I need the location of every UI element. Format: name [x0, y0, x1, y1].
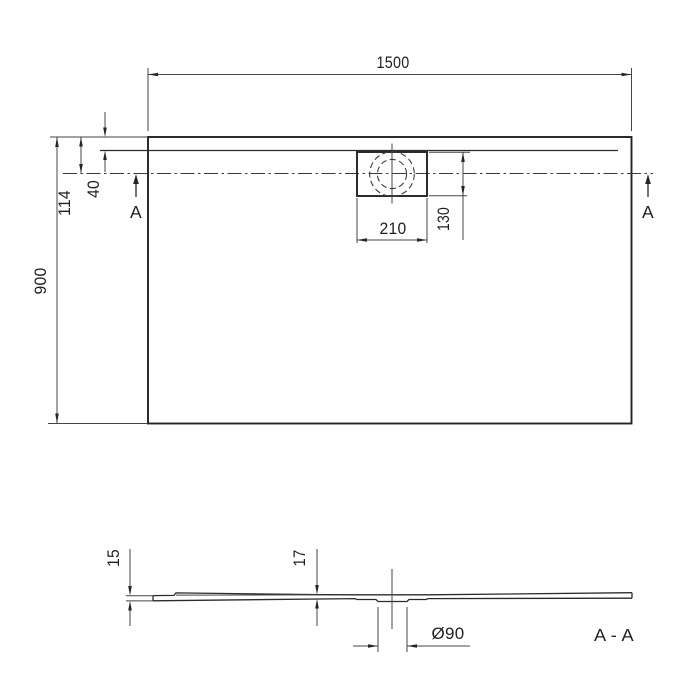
dim-17-label: 17 — [291, 550, 309, 567]
drawing-canvas: 1500 900 114 40 — [0, 0, 700, 700]
dim-17: 17 — [291, 549, 319, 626]
dim-130-label: 130 — [435, 207, 453, 231]
section-cut-arrow-left: A — [130, 174, 142, 222]
dim-900-label: 900 — [32, 268, 50, 295]
dim-114: 114 — [56, 137, 83, 216]
dim-900: 900 — [32, 137, 148, 424]
dim-15: 15 — [105, 549, 153, 626]
dim-1500-label: 1500 — [377, 54, 410, 72]
dim-15-label: 15 — [105, 549, 123, 567]
dim-1500: 1500 — [148, 54, 632, 131]
dim-drain-diameter-label: Ø90 — [432, 625, 465, 643]
dim-drain-diameter: Ø90 — [353, 607, 470, 652]
dim-210: 210 — [357, 198, 427, 243]
technical-drawing-page: { "drawing": { "type": "shower-tray tech… — [0, 0, 700, 700]
cut-marker-right-label: A — [642, 202, 654, 222]
dim-210-label: 210 — [380, 220, 407, 238]
dim-40: 40 — [85, 112, 107, 198]
plan-view: 1500 900 114 40 — [32, 54, 654, 424]
dim-40-label: 40 — [85, 180, 103, 198]
dim-130: 130 — [429, 152, 470, 240]
section-cut-arrow-right: A — [642, 174, 654, 222]
dim-114-label: 114 — [56, 190, 74, 216]
cut-marker-left-label: A — [130, 202, 142, 222]
section-view: 15 17 Ø90 A - A — [105, 549, 634, 652]
section-title: A - A — [594, 625, 634, 645]
tray-outline — [148, 137, 632, 424]
